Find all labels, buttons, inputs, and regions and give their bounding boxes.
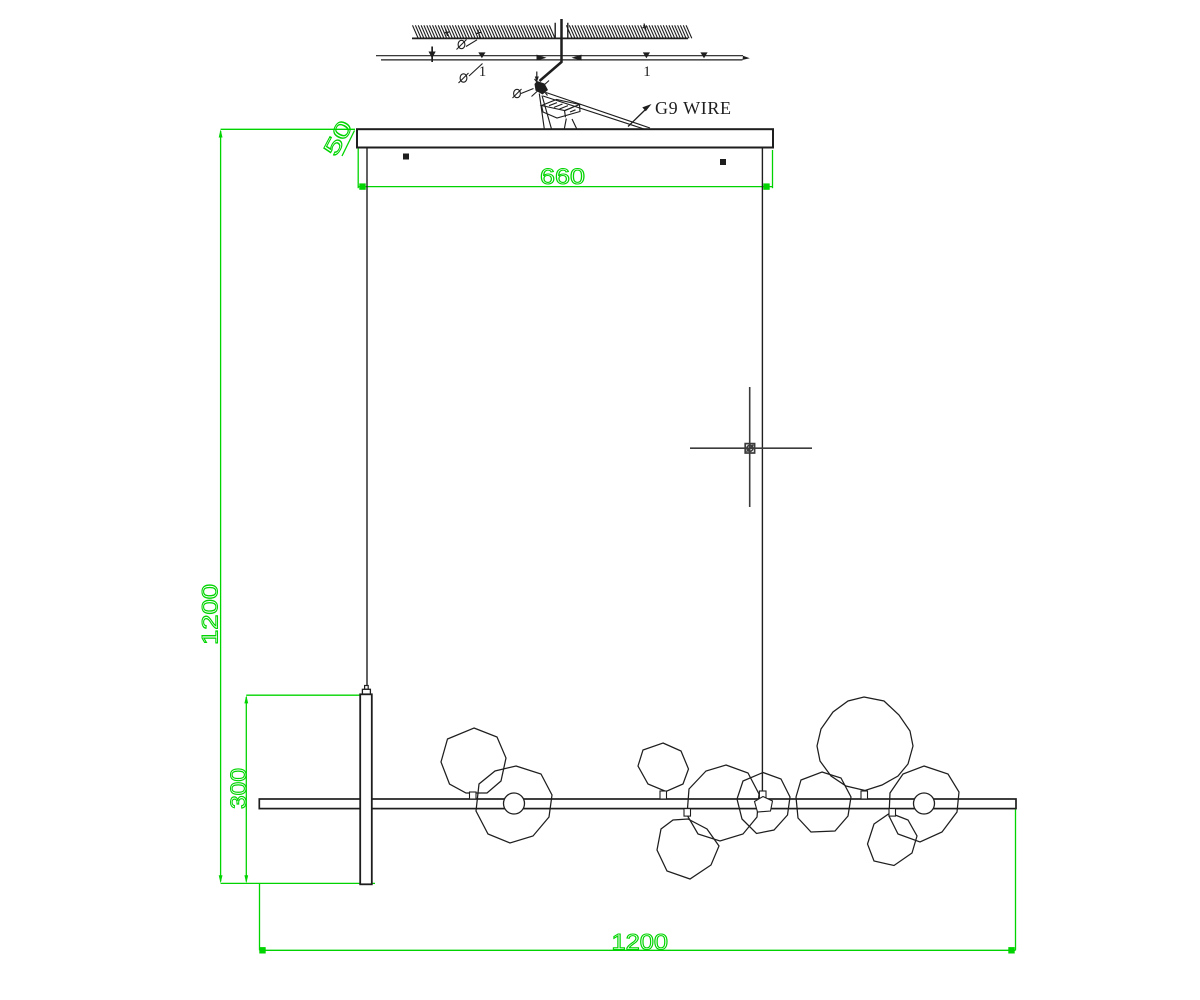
svg-text:1: 1 [643,64,651,80]
svg-text:660: 660 [540,164,585,189]
svg-text:1200: 1200 [612,930,669,955]
svg-text:1200: 1200 [198,584,223,645]
svg-text:300: 300 [226,768,251,809]
svg-text:G9 WIRE: G9 WIRE [655,98,731,118]
